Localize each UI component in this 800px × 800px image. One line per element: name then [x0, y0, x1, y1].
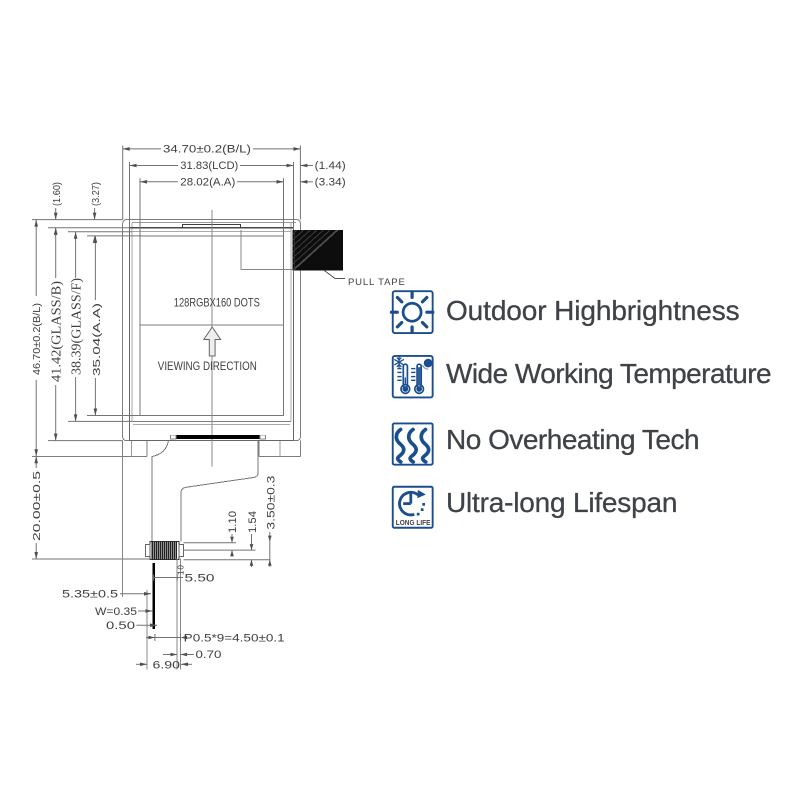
svg-text:20.00±0.5: 20.00±0.5	[31, 471, 43, 541]
svg-text:0.50: 0.50	[106, 620, 135, 632]
svg-text:0.70: 0.70	[196, 649, 222, 661]
svg-text:1.54: 1.54	[247, 511, 259, 533]
svg-text:(3.34): (3.34)	[315, 177, 346, 189]
svg-text:31.83(LCD): 31.83(LCD)	[180, 160, 238, 172]
svg-text:6.90: 6.90	[153, 659, 181, 671]
svg-text:128RGBX160 DOTS: 128RGBX160 DOTS	[174, 296, 260, 310]
svg-text:VIEWING DIRECTION: VIEWING DIRECTION	[158, 359, 257, 373]
svg-text:34.70±0.2(B/L): 34.70±0.2(B/L)	[163, 144, 251, 156]
svg-text:(3.27): (3.27)	[90, 182, 102, 206]
svg-text:46.70±0.2(B/L): 46.70±0.2(B/L)	[31, 303, 43, 375]
svg-text:5.35±0.5: 5.35±0.5	[62, 589, 118, 601]
svg-text:1.10: 1.10	[227, 511, 239, 533]
svg-text:41.42(GLASS/B): 41.42(GLASS/B)	[49, 281, 64, 382]
svg-text:P0.5*9=4.50±0.1: P0.5*9=4.50±0.1	[184, 633, 285, 645]
svg-text:5.50: 5.50	[185, 573, 215, 585]
svg-text:38.39(GLASS/F): 38.39(GLASS/F)	[69, 278, 84, 375]
svg-text:3.50±0.3: 3.50±0.3	[265, 476, 277, 530]
svg-text:W=0.35: W=0.35	[95, 606, 137, 618]
svg-text:(1.44): (1.44)	[315, 160, 346, 172]
svg-text:28.02(A.A): 28.02(A.A)	[180, 177, 235, 189]
svg-text:(1.60): (1.60)	[51, 182, 63, 206]
svg-text:LONG LIFE: LONG LIFE	[396, 518, 431, 527]
svg-text:35.04(A.A): 35.04(A.A)	[91, 303, 103, 376]
